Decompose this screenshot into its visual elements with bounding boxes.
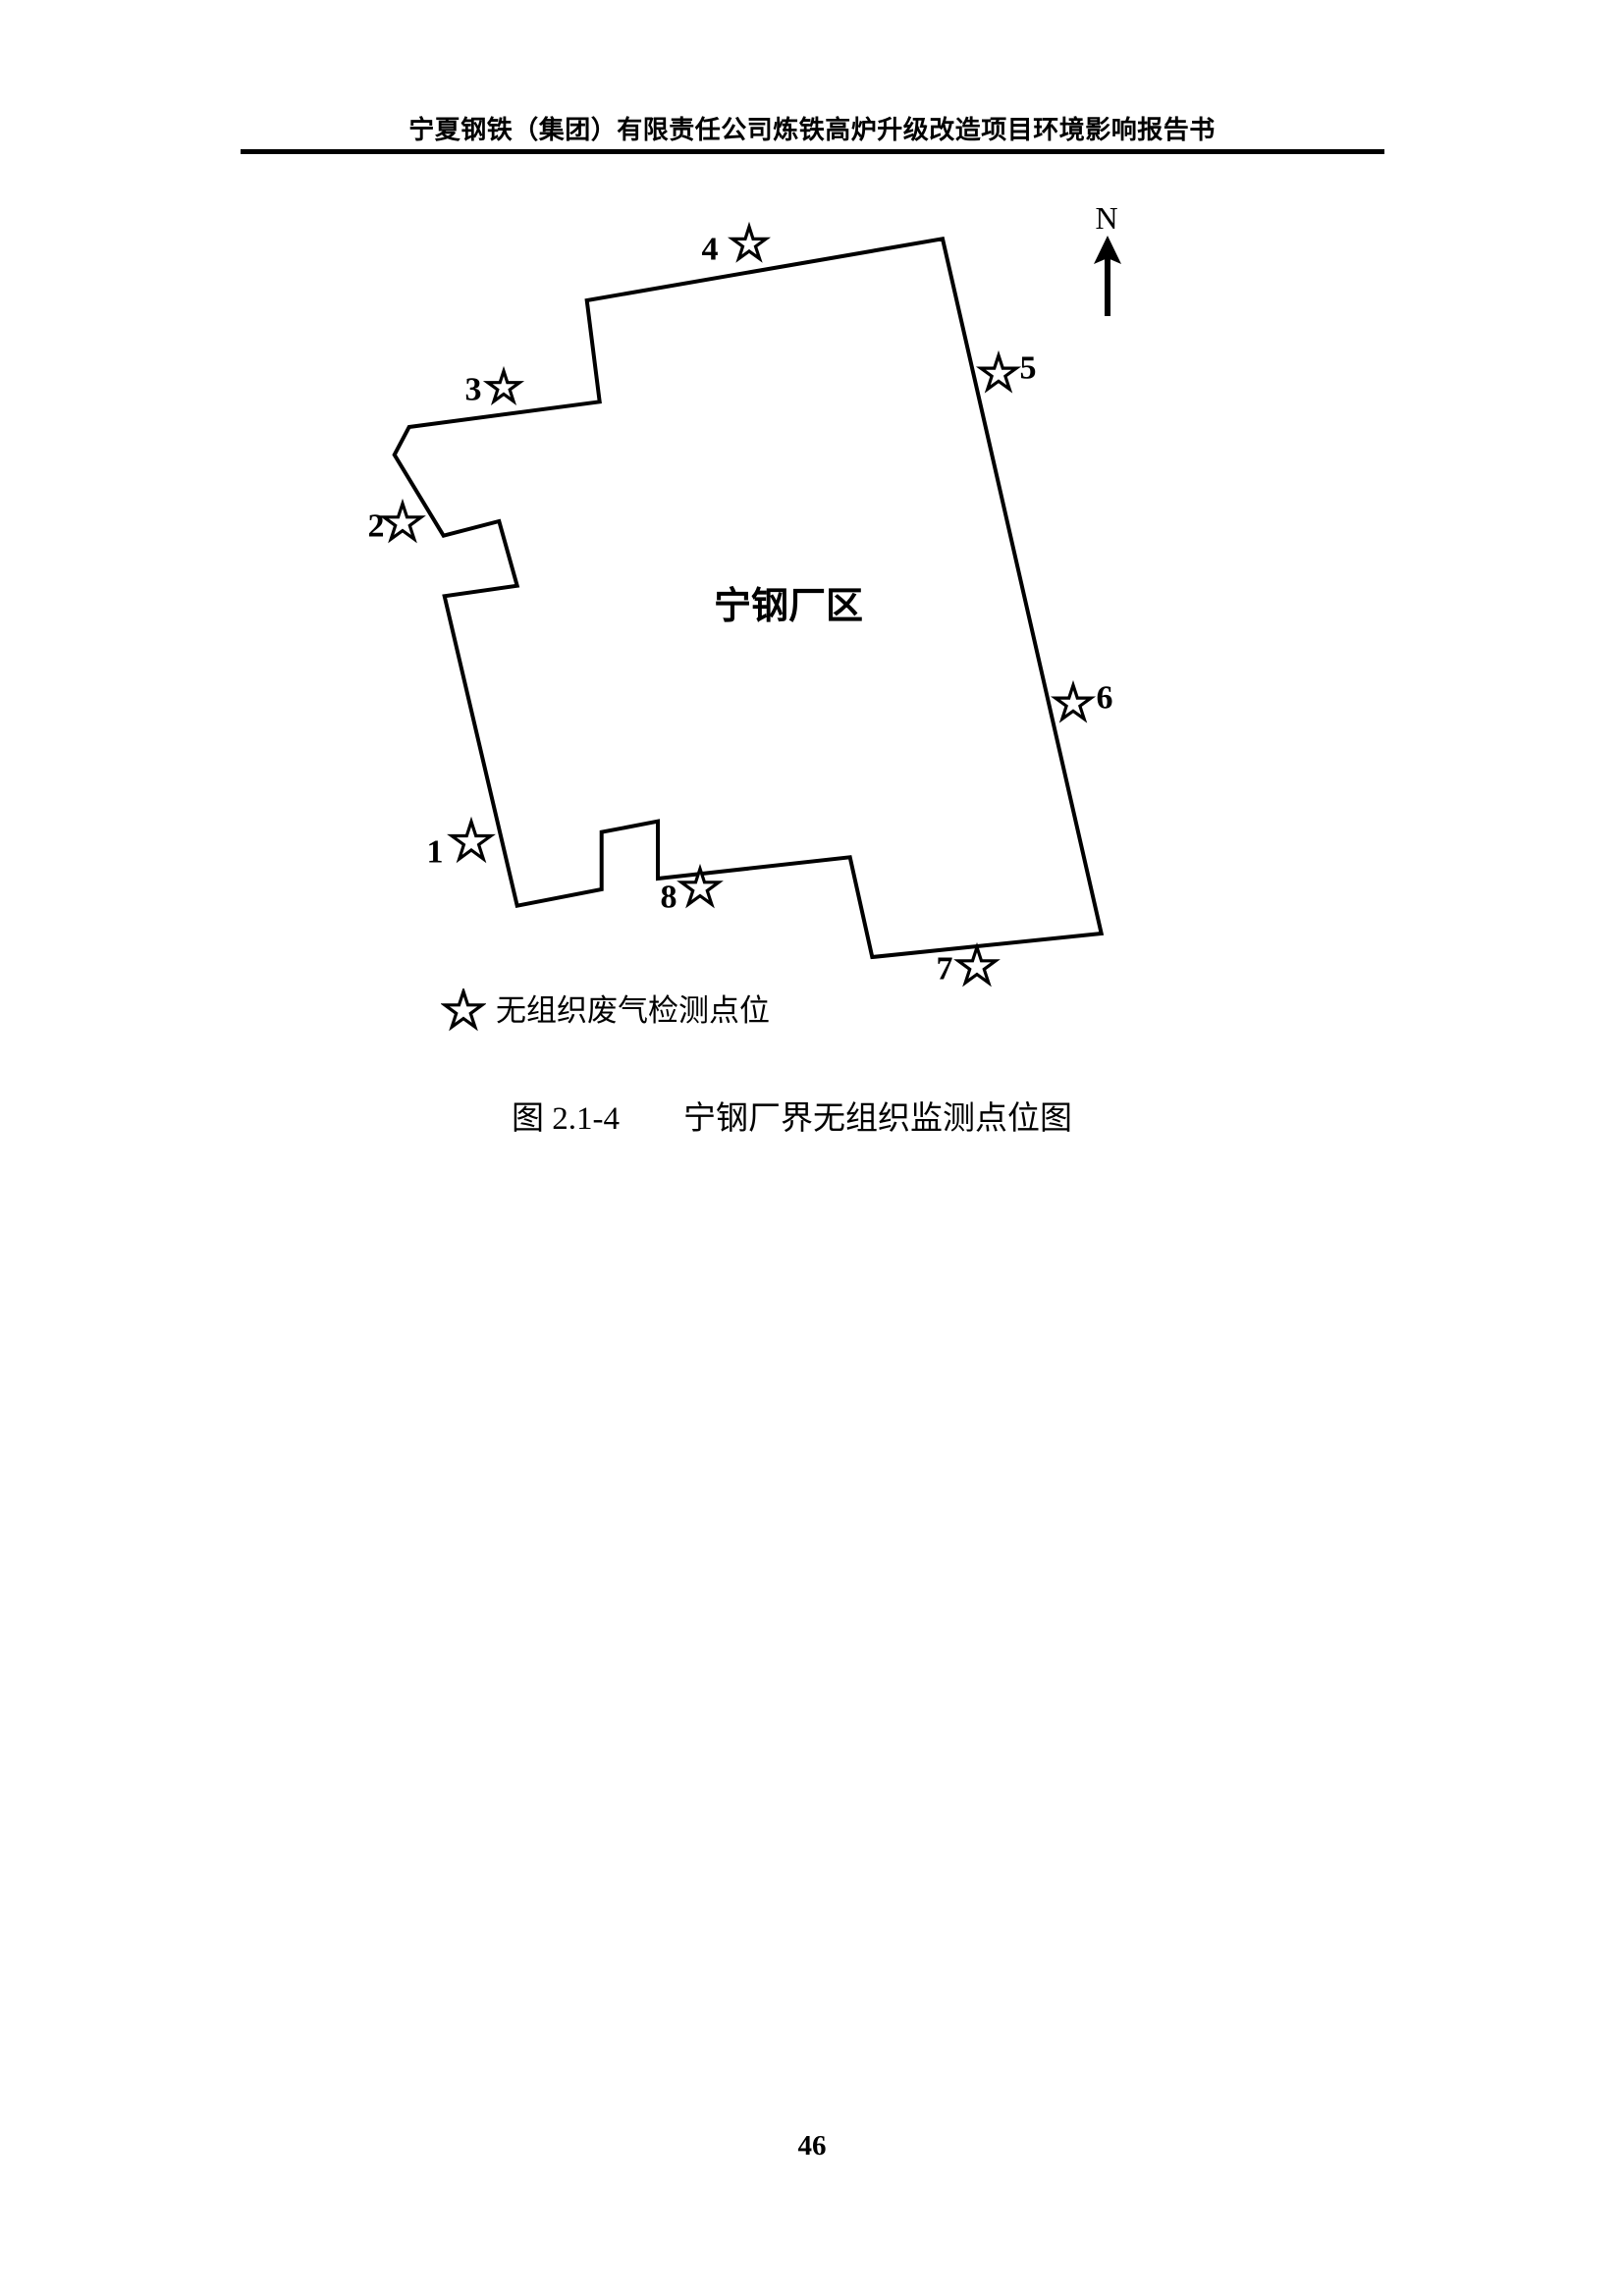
legend-label: 无组织废气检测点位	[496, 988, 770, 1034]
monitoring-point-7: 7	[937, 947, 997, 988]
monitoring-point-label: 5	[1020, 350, 1037, 387]
star-outline-icon	[441, 988, 486, 1034]
monitoring-point-label: 4	[702, 232, 719, 268]
monitoring-point-label: 8	[661, 880, 677, 916]
star-icon	[452, 822, 491, 859]
star-icon	[384, 504, 421, 539]
legend: 无组织废气检测点位	[441, 988, 770, 1034]
monitoring-point-label: 6	[1097, 680, 1113, 717]
monitoring-point-5: 5	[981, 350, 1037, 390]
monitoring-point-2: 2	[368, 504, 422, 545]
figure-title: 宁钢厂界无组织监测点位图	[683, 1101, 1072, 1137]
monitoring-point-label: 3	[465, 372, 482, 408]
figure-number: 图 2.1-4	[512, 1101, 620, 1137]
plant-region-label: 宁钢厂区	[714, 586, 863, 627]
monitoring-point-6: 6	[1056, 680, 1113, 720]
star-icon	[981, 355, 1016, 389]
north-label: N	[1095, 200, 1117, 236]
monitoring-point-1: 1	[427, 822, 492, 871]
north-indicator: N	[1094, 200, 1121, 316]
monitoring-point-label: 7	[937, 951, 953, 988]
report-page: 宁夏钢铁（集团）有限责任公司炼铁高炉升级改造项目环境影响报告书 宁钢厂区 N 1…	[0, 0, 1624, 2296]
star-icon	[958, 947, 996, 983]
plant-map: 宁钢厂区 N 12345678	[0, 0, 1624, 2296]
star-icon	[732, 227, 766, 259]
monitoring-point-4: 4	[702, 227, 767, 268]
monitoring-point-label: 2	[368, 508, 385, 545]
page-number: 46	[0, 2130, 1624, 2163]
north-arrow-icon	[1094, 236, 1121, 316]
star-icon	[1056, 685, 1091, 719]
star-icon	[488, 371, 519, 401]
monitoring-point-3: 3	[465, 371, 520, 408]
monitoring-point-label: 1	[427, 834, 444, 871]
